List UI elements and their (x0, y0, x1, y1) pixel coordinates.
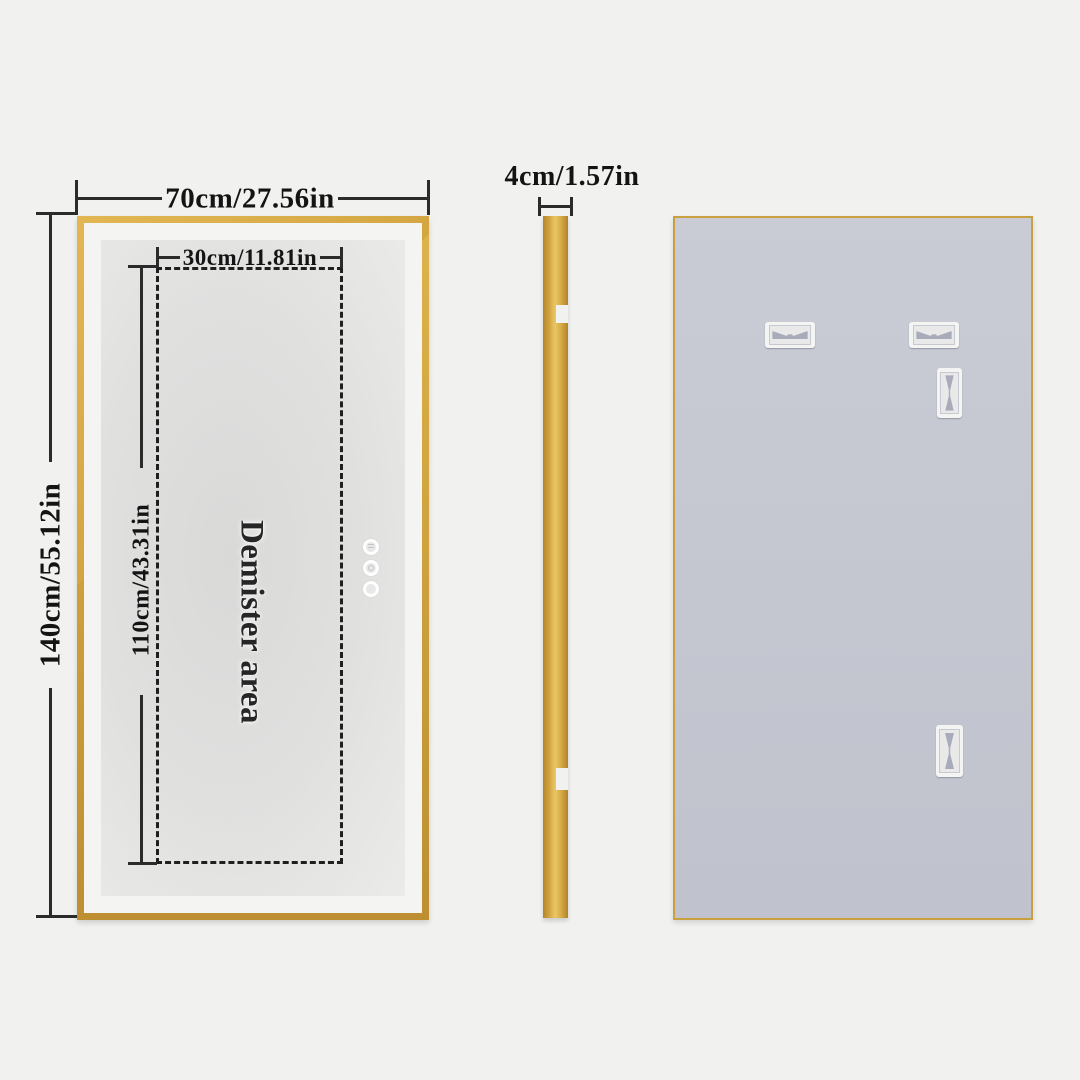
dimension-line-segment (140, 695, 143, 863)
dimension-line-segment (158, 256, 180, 259)
dimension-line-segment (49, 215, 52, 462)
back-panel (673, 216, 1033, 920)
mounting-bracket-horizontal (765, 322, 815, 348)
dimension-line-segment (140, 268, 143, 468)
dimension-line-segment (538, 205, 573, 208)
touch-sensor-button-icon (363, 560, 379, 576)
demister-width-label: 30cm/11.81in (183, 245, 317, 271)
bracket-slot (913, 325, 955, 345)
bracket-cleat (945, 733, 954, 770)
demister-area-label: Demister area (233, 520, 270, 724)
demister-height-label: 110cm/43.31in (129, 504, 156, 657)
bracket-slot (769, 325, 811, 345)
mounting-notch (556, 305, 568, 323)
mirror-dimension-diagram: 70cm/27.56in 140cm/55.12in Demister area… (0, 0, 1080, 1080)
bracket-cleat (916, 331, 951, 339)
bracket-cleat (772, 331, 807, 339)
dimmer-icon (368, 565, 374, 571)
side-profile-bar (543, 216, 568, 918)
dimension-line-segment (320, 256, 342, 259)
touch-sensor-button-icon (363, 539, 379, 555)
dimension-line-segment (338, 197, 429, 200)
thickness-dimension-label: 4cm/1.57in (505, 161, 640, 193)
mounting-bracket-vertical (937, 368, 962, 418)
bracket-slot (939, 729, 960, 773)
mounting-bracket-vertical (936, 725, 963, 777)
dimension-line-segment (49, 688, 52, 917)
mounting-notch (556, 768, 568, 790)
touch-sensor-button-icon (363, 581, 379, 597)
dimension-tick (36, 212, 78, 215)
width-dimension-label: 70cm/27.56in (165, 183, 335, 216)
dimension-tick (36, 915, 78, 918)
mounting-bracket-horizontal (909, 322, 959, 348)
dimension-line-segment (77, 197, 162, 200)
bracket-slot (940, 372, 959, 414)
defogger-icon (368, 544, 374, 550)
height-dimension-label: 140cm/55.12in (35, 483, 68, 668)
bracket-cleat (945, 375, 953, 410)
